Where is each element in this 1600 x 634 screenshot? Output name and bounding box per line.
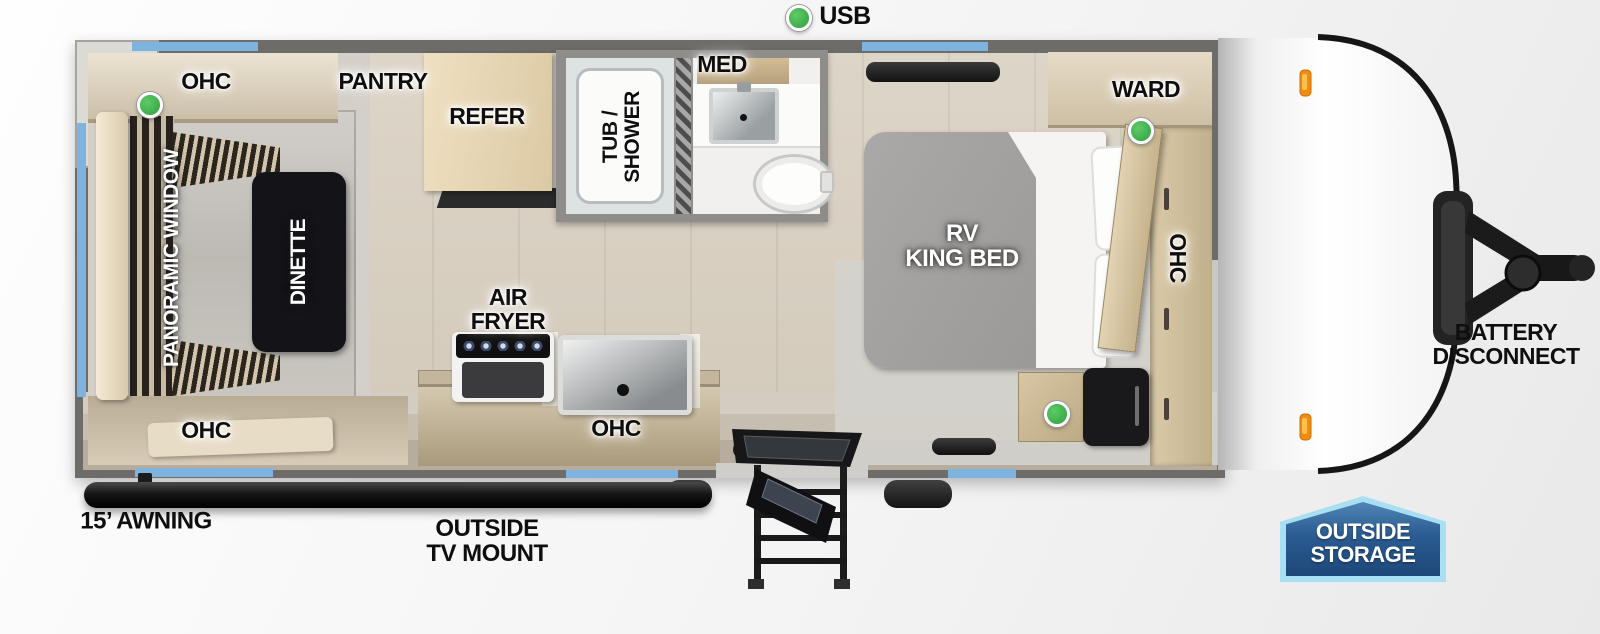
marker-light-glow: [1302, 418, 1307, 434]
label-med: MED: [697, 53, 747, 77]
ohc-cabinet-rear-bottom: [88, 396, 408, 465]
label-battery-disconnect: BATTERY DISCONNECT: [1432, 321, 1579, 369]
marker-light-glow: [1302, 74, 1307, 90]
burner-icon: [531, 341, 543, 351]
label-ohc-rear-bottom: OHC: [181, 419, 231, 443]
label-refer: REFER: [449, 105, 524, 129]
refrigerator-base: [437, 188, 563, 208]
usb-indicator-dinette: [137, 92, 163, 118]
cabinet-handle-icon: [1164, 188, 1169, 210]
usb-indicator-wardrobe: [1128, 118, 1154, 144]
label-ohc-rear-top: OHC: [181, 70, 231, 94]
burner-icon: [463, 341, 475, 351]
step-rung: [754, 558, 847, 564]
bathroom-sink: [709, 88, 779, 144]
oven-front: [462, 362, 544, 398]
burner-icon: [497, 341, 509, 351]
window-bottom-bedroom: [948, 469, 1016, 478]
range-stove: [452, 332, 554, 402]
awning-tube: [84, 482, 712, 508]
label-ohc-kitchen: OHC: [591, 417, 641, 441]
kitchen-sink: [558, 335, 692, 415]
entry-steps: [710, 415, 885, 593]
burner-icon: [514, 341, 526, 351]
usb-indicator-bedside: [1044, 401, 1070, 427]
label-air-fryer: AIR FRYER: [471, 286, 546, 334]
hitch-mount-inner: [1441, 201, 1465, 335]
drain-icon: [617, 384, 629, 396]
window-bottom-rear: [135, 468, 273, 477]
cabinet-handle-icon: [1164, 398, 1169, 420]
drain-icon: [740, 114, 747, 121]
usb-legend-label: USB: [819, 3, 870, 29]
bath-vanity-area: [693, 58, 820, 214]
label-dinette: DINETTE: [288, 219, 310, 305]
label-panoramic-window: PANORAMIC WINDOW: [161, 108, 183, 408]
toilet: [753, 154, 835, 214]
faucet-icon: [737, 82, 751, 92]
window-rear-panoramic: [77, 123, 86, 397]
label-ohc-bedroom: OHC: [1165, 233, 1189, 283]
hitch-coupler-end: [1569, 255, 1595, 281]
ohc-cabinet-bedroom: [1150, 128, 1212, 466]
cabinet-handle-icon: [1135, 386, 1139, 426]
label-tub-shower: TUB / SHOWER: [600, 91, 644, 183]
toilet-hinge: [820, 171, 834, 193]
label-outside-tv-mount: OUTSIDE TV MOUNT: [426, 517, 547, 567]
rv-floorplan-scene: USB: [0, 0, 1600, 634]
bedside-cabinet: [1083, 368, 1149, 446]
bathroom: [556, 50, 828, 222]
usb-indicator-icon: [786, 5, 812, 31]
label-rv-king-bed: RV KING BED: [905, 222, 1018, 272]
window-top-rear: [132, 42, 258, 51]
step-rung: [754, 535, 847, 541]
cabinet-handle-icon: [1164, 308, 1169, 330]
outside-storage-badge: OUTSIDE STORAGE: [1280, 496, 1446, 582]
cooktop: [456, 334, 550, 358]
label-outside-storage: OUTSIDE STORAGE: [1311, 520, 1416, 567]
bedroom-tv: [866, 62, 1000, 82]
hitch-jack-knob: [1506, 256, 1540, 290]
step-foot: [748, 579, 764, 589]
step-foot: [834, 579, 850, 589]
doorway-inner: [744, 436, 850, 461]
label-pantry: PANTRY: [339, 70, 428, 94]
outside-storage-badge-inner: OUTSIDE STORAGE: [1286, 502, 1440, 576]
bench-cushion: [147, 417, 333, 457]
window-bottom-kitchen: [566, 470, 678, 478]
stabilizer-jack: [884, 480, 952, 508]
rear-window-valance: [96, 112, 128, 400]
window-top-bedroom: [862, 42, 988, 51]
exterior-speaker: [932, 438, 996, 455]
label-ward: WARD: [1112, 78, 1180, 102]
burner-icon: [480, 341, 492, 351]
shower-door: [676, 58, 691, 214]
label-awning: 15’ AWNING: [80, 510, 211, 535]
